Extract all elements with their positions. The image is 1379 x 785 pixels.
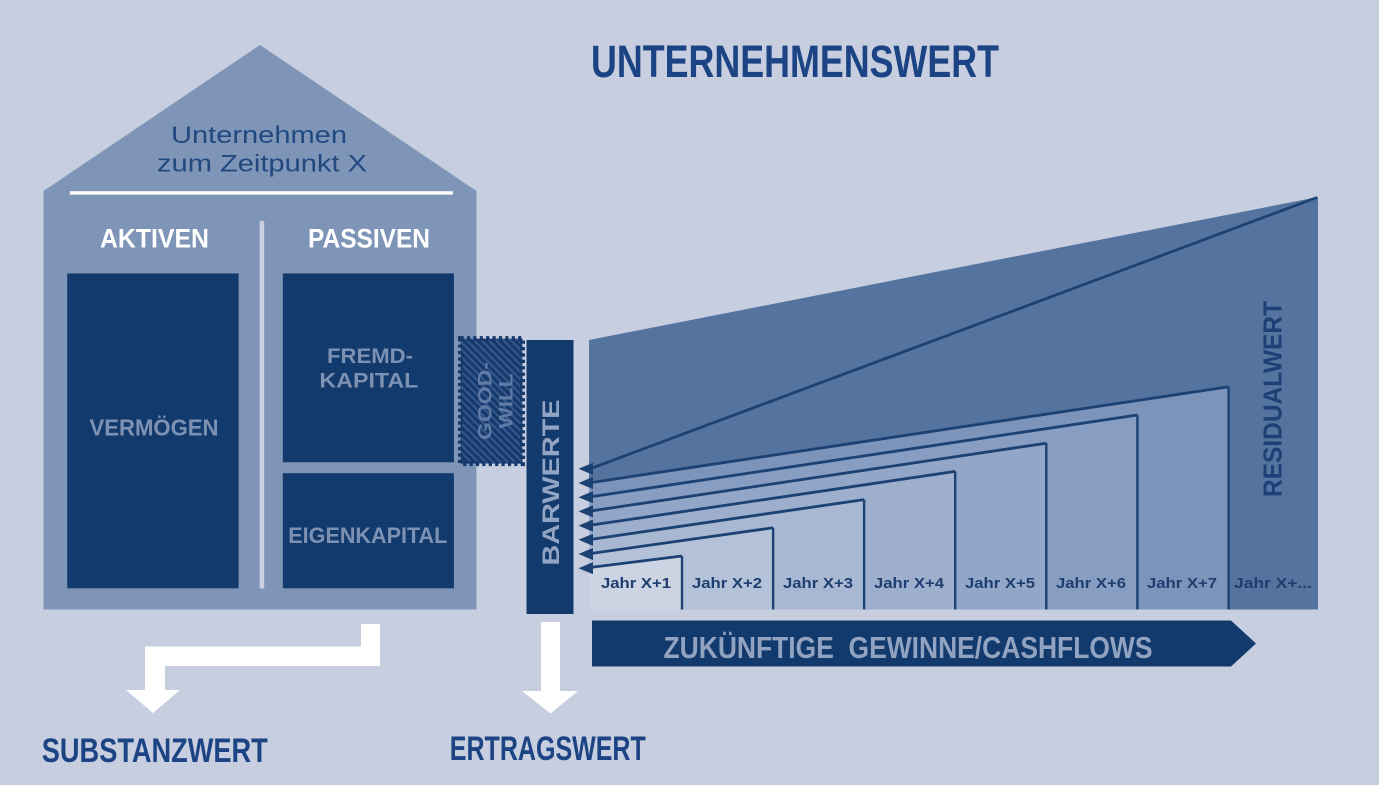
svg-text:WILL: WILL (497, 373, 518, 428)
svg-text:Jahr X+3: Jahr X+3 (783, 575, 853, 592)
svg-text:SUBSTANZWERT: SUBSTANZWERT (42, 732, 268, 770)
svg-text:Jahr X+6: Jahr X+6 (1056, 575, 1126, 592)
svg-text:KAPITAL: KAPITAL (319, 370, 418, 393)
svg-text:PASSIVEN: PASSIVEN (308, 224, 430, 254)
svg-text:Jahr X+...: Jahr X+... (1234, 575, 1312, 592)
svg-text:FREMD-: FREMD- (327, 345, 413, 368)
svg-text:EIGENKAPITAL: EIGENKAPITAL (288, 523, 447, 548)
svg-text:Jahr X+1: Jahr X+1 (601, 575, 671, 592)
svg-text:UNTERNEHMENSWERT: UNTERNEHMENSWERT (591, 36, 999, 87)
svg-text:AKTIVEN: AKTIVEN (100, 224, 209, 254)
svg-text:BARWERTE: BARWERTE (538, 400, 565, 566)
svg-text:Unternehmen: Unternehmen (171, 122, 347, 149)
svg-text:zum Zeitpunkt X: zum Zeitpunkt X (157, 151, 367, 178)
svg-text:ERTRAGSWERT: ERTRAGSWERT (450, 730, 646, 768)
svg-text:VERMÖGEN: VERMÖGEN (90, 414, 219, 440)
svg-text:Jahr X+5: Jahr X+5 (965, 575, 1035, 592)
svg-text:GOOD-: GOOD- (476, 362, 497, 440)
svg-text:Jahr X+7: Jahr X+7 (1147, 575, 1217, 592)
svg-text:Jahr X+2: Jahr X+2 (692, 575, 762, 592)
svg-text:ZUKÜNFTIGE GEWINNE/CASHFLOWS: ZUKÜNFTIGE GEWINNE/CASHFLOWS (664, 630, 1153, 665)
svg-text:Jahr X+4: Jahr X+4 (874, 575, 945, 592)
svg-text:RESIDUALWERT: RESIDUALWERT (1258, 301, 1288, 497)
